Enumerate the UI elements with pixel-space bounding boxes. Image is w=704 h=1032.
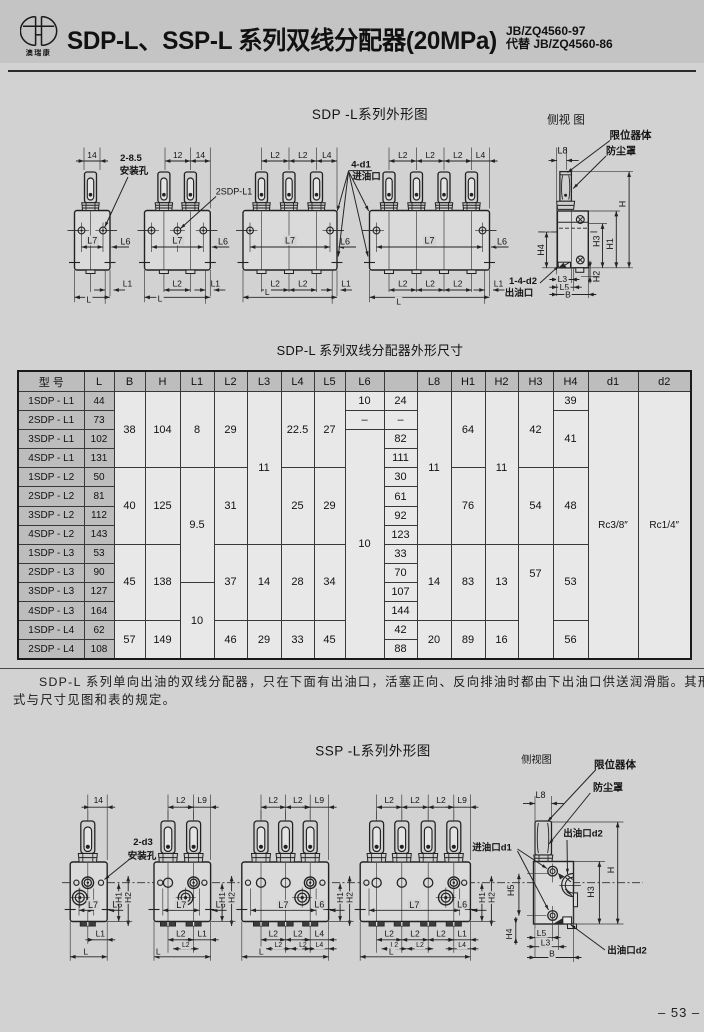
svg-text:2SDP-L1: 2SDP-L1 [216,186,253,196]
svg-text:进油口d1: 进油口d1 [472,842,512,854]
svg-text:H3: H3 [591,235,601,247]
svg-text:H2: H2 [123,892,133,903]
svg-text:L9: L9 [197,795,207,805]
svg-text:L7: L7 [88,900,98,910]
svg-text:L2: L2 [176,795,186,805]
svg-text:L1: L1 [494,279,504,289]
svg-text:安装孔: 安装孔 [120,165,149,177]
svg-text:L2: L2 [298,279,308,289]
svg-text:L: L [158,294,163,304]
svg-text:L2: L2 [398,279,408,289]
svg-text:L7: L7 [424,236,434,246]
svg-text:L2: L2 [293,929,303,939]
svg-text:防尘罩: 防尘罩 [593,781,623,794]
svg-text:L2: L2 [425,150,435,160]
svg-text:L6: L6 [218,237,228,247]
svg-text:L1: L1 [96,929,106,939]
svg-text:1-4-d2: 1-4-d2 [509,276,537,287]
svg-text:2-d3: 2-d3 [133,837,153,848]
svg-text:H2: H2 [227,892,237,903]
svg-text:L2: L2 [398,150,408,160]
svg-text:H1: H1 [335,892,345,903]
svg-text:L6: L6 [340,237,350,247]
svg-text:L2: L2 [416,942,424,949]
svg-text:H: H [606,867,616,874]
svg-text:L: L [389,946,394,956]
svg-text:L9: L9 [457,795,467,805]
svg-text:L2: L2 [293,795,303,805]
svg-text:L2: L2 [269,795,279,805]
svg-text:L6: L6 [120,237,130,247]
svg-text:安装孔: 安装孔 [128,850,157,862]
svg-text:L2: L2 [384,795,394,805]
svg-text:L2: L2 [453,150,463,160]
svg-text:L2: L2 [436,929,446,939]
svg-text:L2: L2 [182,942,190,949]
svg-text:L2: L2 [172,279,182,289]
svg-text:B: B [565,289,571,299]
svg-text:出油口d2: 出油口d2 [563,828,603,840]
svg-text:H3: H3 [586,886,596,898]
svg-text:L6: L6 [497,237,507,247]
svg-text:出油口: 出油口 [505,287,534,299]
svg-text:L7: L7 [176,900,186,910]
svg-text:L2: L2 [384,929,394,939]
svg-text:SSP -L系列外形图: SSP -L系列外形图 [315,744,431,759]
svg-text:L1: L1 [211,279,221,289]
svg-text:SDP -L系列外形图: SDP -L系列外形图 [312,107,428,122]
svg-text:H4: H4 [504,928,514,939]
svg-text:L: L [396,297,401,307]
svg-text:进油口: 进油口 [352,171,381,183]
svg-text:限位器体: 限位器体 [594,758,636,771]
svg-text:L1: L1 [123,279,133,289]
svg-text:L2: L2 [270,150,280,160]
svg-text:防尘罩: 防尘罩 [606,145,636,158]
svg-text:L2: L2 [298,150,308,160]
svg-text:L2: L2 [436,795,446,805]
svg-text:L8: L8 [557,146,567,156]
svg-text:L6: L6 [457,899,467,909]
svg-text:L4: L4 [458,942,466,949]
svg-text:L: L [259,946,264,956]
svg-text:L9: L9 [315,795,325,805]
svg-text:H2: H2 [345,892,355,903]
svg-text:H1: H1 [605,238,615,250]
svg-text:L7: L7 [409,900,419,910]
svg-text:L: L [156,946,161,956]
svg-text:H5: H5 [506,885,516,897]
svg-text:L2: L2 [453,279,463,289]
svg-text:L1: L1 [457,929,467,939]
svg-text:L3: L3 [541,938,551,948]
svg-text:L7: L7 [172,236,182,246]
svg-text:L2: L2 [270,279,280,289]
svg-text:H2: H2 [486,892,496,903]
svg-text:H: H [617,201,627,208]
svg-text:L5: L5 [537,928,547,938]
svg-text:限位器体: 限位器体 [610,129,652,142]
svg-text:L2: L2 [176,929,186,939]
svg-text:14: 14 [87,150,97,160]
svg-text:H1: H1 [114,892,124,903]
svg-text:L: L [86,295,91,305]
svg-text:L4: L4 [322,150,332,160]
svg-text:L2: L2 [410,929,420,939]
svg-text:B: B [549,949,555,959]
svg-text:14: 14 [94,795,104,805]
svg-text:L: L [265,287,270,297]
svg-text:L7: L7 [278,900,288,910]
svg-text:4-d1: 4-d1 [351,160,371,171]
svg-text:L: L [83,946,88,956]
svg-text:12: 12 [173,150,183,160]
svg-text:L1: L1 [197,929,207,939]
svg-text:L4: L4 [476,150,486,160]
svg-text:L8: L8 [535,790,545,800]
svg-text:L4: L4 [315,929,325,939]
svg-text:H1: H1 [477,892,487,903]
svg-text:14: 14 [196,150,206,160]
svg-text:L2: L2 [274,942,282,949]
svg-text:L7: L7 [285,236,295,246]
svg-text:L1: L1 [341,279,351,289]
svg-text:L4: L4 [316,942,324,949]
svg-text:H1: H1 [217,892,227,903]
svg-text:H4: H4 [536,244,546,256]
svg-text:出油口d2: 出油口d2 [607,945,647,957]
svg-text:L2: L2 [410,795,420,805]
svg-text:L6: L6 [314,899,324,909]
svg-text:侧视图: 侧视图 [521,753,552,766]
svg-text:L2: L2 [269,929,279,939]
svg-text:2-8.5: 2-8.5 [120,153,142,164]
svg-text:L7: L7 [87,236,97,246]
svg-text:侧视 图: 侧视 图 [547,113,585,127]
svg-text:L2: L2 [425,279,435,289]
